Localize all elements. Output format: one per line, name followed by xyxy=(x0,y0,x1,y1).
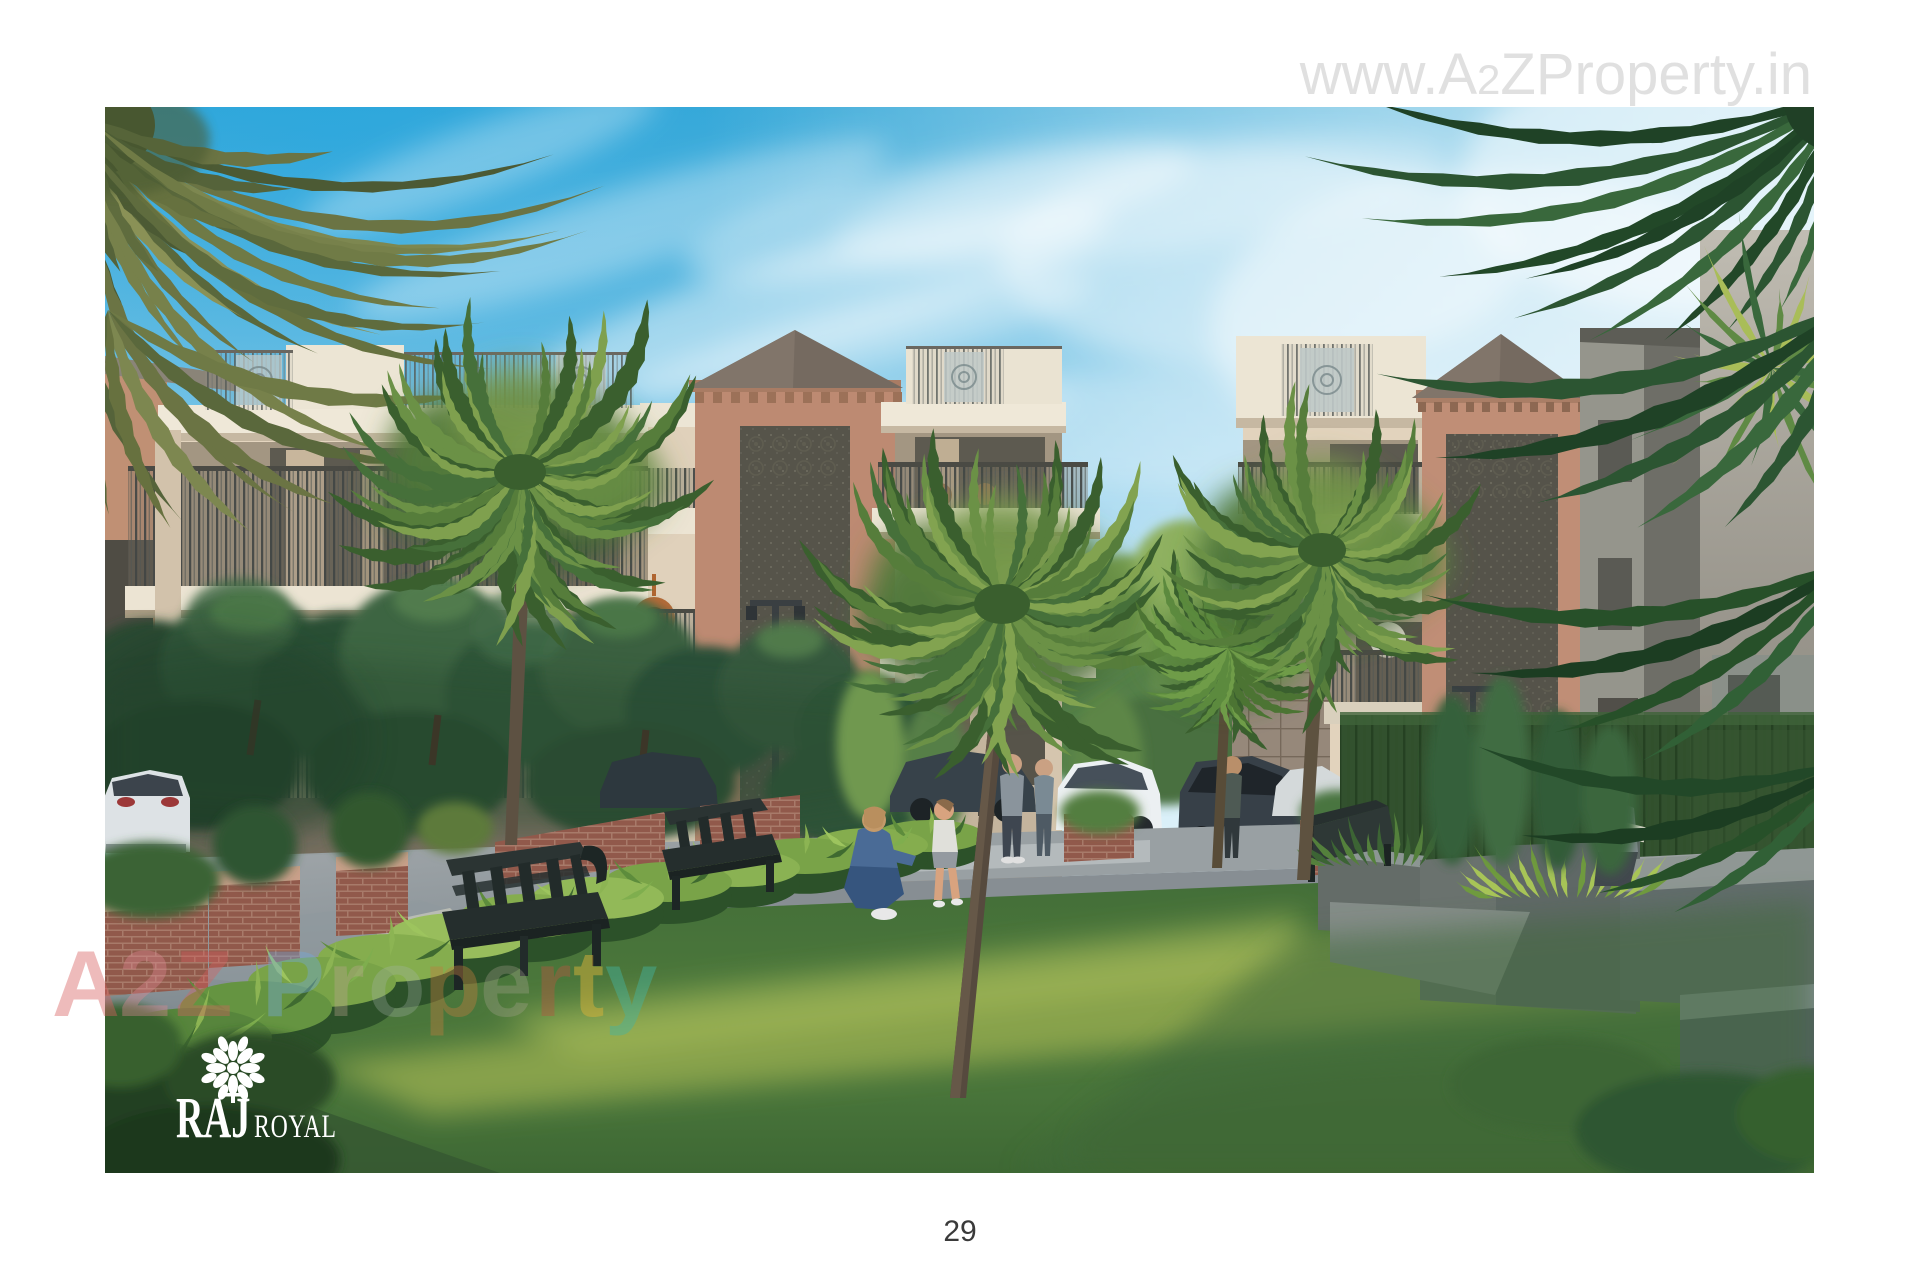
svg-text:r: r xyxy=(328,931,365,1036)
svg-text:o: o xyxy=(368,931,425,1036)
svg-text:Z: Z xyxy=(175,931,232,1036)
svg-text:P: P xyxy=(262,931,325,1036)
svg-text:ROYAL: ROYAL xyxy=(254,1108,337,1145)
svg-text:www.A2ZProperty.in: www.A2ZProperty.in xyxy=(1299,42,1812,107)
svg-text:RAJ: RAJ xyxy=(176,1085,250,1150)
svg-text:y: y xyxy=(605,931,657,1036)
svg-text:p: p xyxy=(424,931,481,1036)
svg-text:t: t xyxy=(573,931,604,1036)
svg-text:2: 2 xyxy=(119,931,171,1036)
svg-text:e: e xyxy=(480,931,532,1036)
svg-text:A: A xyxy=(52,931,120,1036)
svg-text:r: r xyxy=(535,931,572,1036)
svg-text:29: 29 xyxy=(943,1215,976,1248)
